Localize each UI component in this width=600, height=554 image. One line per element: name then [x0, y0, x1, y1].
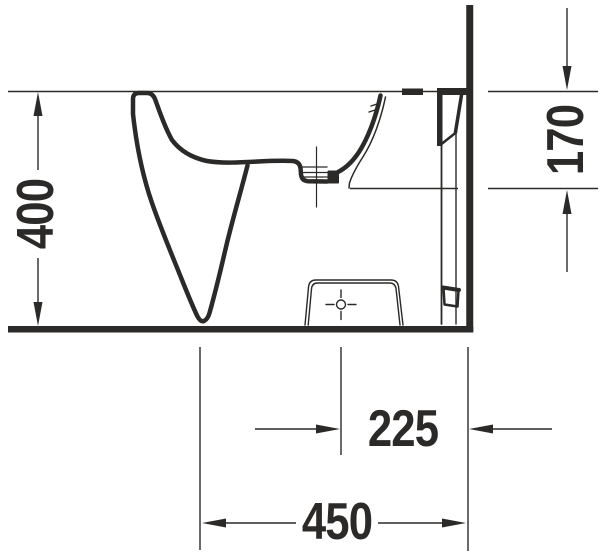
fixing-bracket-top [443, 288, 459, 291]
back-frame-bottom [442, 133, 457, 145]
arrow-left-icon [202, 519, 226, 528]
bidet-profile [133, 88, 467, 325]
drain-cover [305, 280, 403, 325]
center-mark-icon [326, 290, 356, 320]
arrow-left-icon [469, 425, 493, 434]
dimension-label-225: 225 [368, 403, 438, 455]
bowl-back-curve-inner [349, 97, 386, 188]
dimension-label-450: 450 [302, 496, 372, 548]
dimension-label-170: 170 [540, 105, 592, 175]
arrow-up-icon [563, 190, 572, 214]
back-deck-bar [402, 89, 423, 96]
extension-lines [8, 92, 598, 552]
technical-drawing-canvas: 400 170 225 450 [0, 0, 600, 554]
bidet-side-view-drawing [0, 0, 600, 554]
back-frame-bar [437, 88, 443, 146]
bidet-outline [133, 93, 327, 321]
drain-ladder-detail [302, 167, 327, 177]
dimension-label-400: 400 [10, 179, 62, 249]
arrow-right-icon [442, 519, 466, 528]
back-frame-slant [456, 95, 462, 132]
arrow-right-icon [316, 425, 340, 434]
arrow-up-icon [34, 92, 43, 116]
arrow-down-icon [563, 66, 572, 90]
arrow-down-icon [34, 302, 43, 326]
